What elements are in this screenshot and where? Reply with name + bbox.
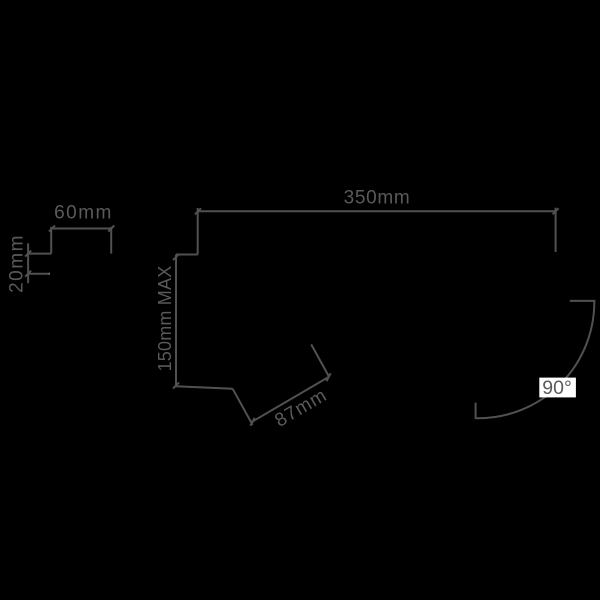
svg-text:150mm MAX: 150mm MAX <box>155 266 175 372</box>
svg-text:350mm: 350mm <box>344 188 411 209</box>
svg-text:90°: 90° <box>542 377 572 399</box>
svg-text:20mm: 20mm <box>6 234 27 293</box>
svg-text:60mm: 60mm <box>54 203 113 224</box>
